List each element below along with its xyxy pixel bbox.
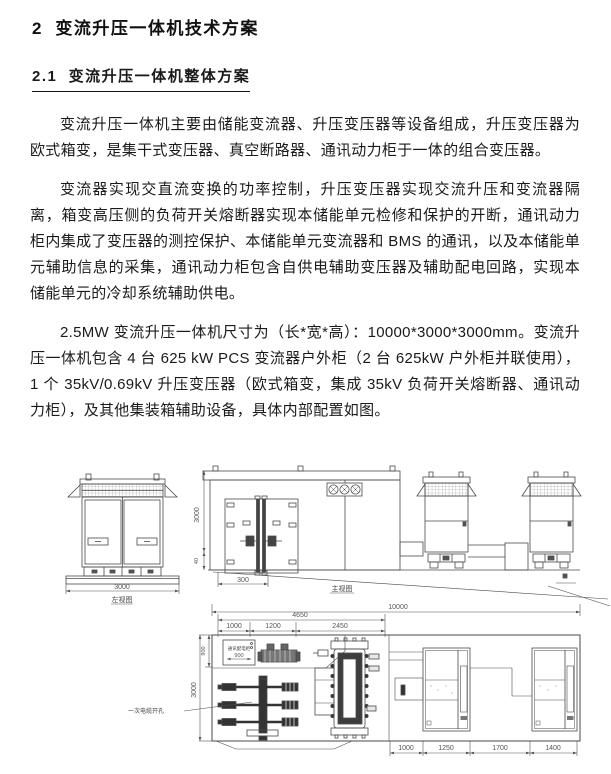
side-view-dimensions: 3000 左视图 <box>66 584 179 604</box>
dim-plan-bottom-3: 1700 <box>492 745 508 752</box>
plan-view-dimensions-bottom: 1000 1250 1700 1400 <box>390 741 577 756</box>
side-view-drawing <box>66 474 179 584</box>
section-heading: 2 变流升压一体机技术方案 <box>32 14 580 39</box>
dim-plan-bottom-2: 1250 <box>438 745 454 752</box>
dim-front-base: 40 <box>194 558 200 564</box>
technical-drawing: 3000 左视图 <box>0 455 611 774</box>
dim-plan-top-2: 1200 <box>265 623 281 630</box>
dim-front-height: 3000 <box>194 507 201 523</box>
cable-hole-label: 一次电缆开孔 <box>128 707 164 715</box>
subsection-heading: 2.1 变流升压一体机整体方案 <box>32 65 580 92</box>
dim-plan-bottom-1: 1000 <box>398 745 414 752</box>
dim-aux-width: 900 <box>234 653 243 659</box>
busbar-arm <box>218 718 298 726</box>
transformer-plan <box>313 638 379 738</box>
side-view-label: 左视图 <box>112 595 133 604</box>
document-page: 2 变流升压一体机技术方案 2.1 变流升压一体机整体方案 变流升压一体机主要由… <box>0 0 611 774</box>
dim-total-length: 10000 <box>388 604 408 611</box>
paragraph-2: 变流器实现交直流变换的功率控制，升压变压器实现交流升压和变流器隔离，箱变高压侧的… <box>30 177 580 307</box>
busbar-arm <box>218 683 298 691</box>
text-block: 2 变流升压一体机技术方案 2.1 变流升压一体机整体方案 变流升压一体机主要由… <box>30 10 580 437</box>
dim-plan-top-1: 1000 <box>226 623 242 630</box>
paragraph-3: 2.5MW 变流升压一体机尺寸为（长*宽*高）：10000*3000*3000m… <box>30 320 580 424</box>
paragraph-1: 变流升压一体机主要由储能变流器、升压变压器等设备组成，升压变压器为欧式箱变，是集… <box>30 112 580 164</box>
dim-plan-bottom-4: 1400 <box>545 745 561 752</box>
dim-plan-depth: 3000 <box>191 682 198 698</box>
dim-side-width: 3000 <box>114 584 130 591</box>
front-view-label: 主视图 <box>332 584 353 593</box>
pcs-cabinet-b-plan <box>532 648 577 731</box>
pcs-cabinet-a-plan <box>423 648 470 731</box>
dim-plan-group: 4650 <box>292 612 308 619</box>
dim-plan-aux-depth: 900 <box>201 646 207 655</box>
dim-front-offset: 300 <box>237 577 249 584</box>
aux-cabinet-label: 通讯配电柜 <box>228 645 251 652</box>
front-view-drawing <box>203 466 610 606</box>
dim-plan-top-3: 2450 <box>332 623 348 630</box>
